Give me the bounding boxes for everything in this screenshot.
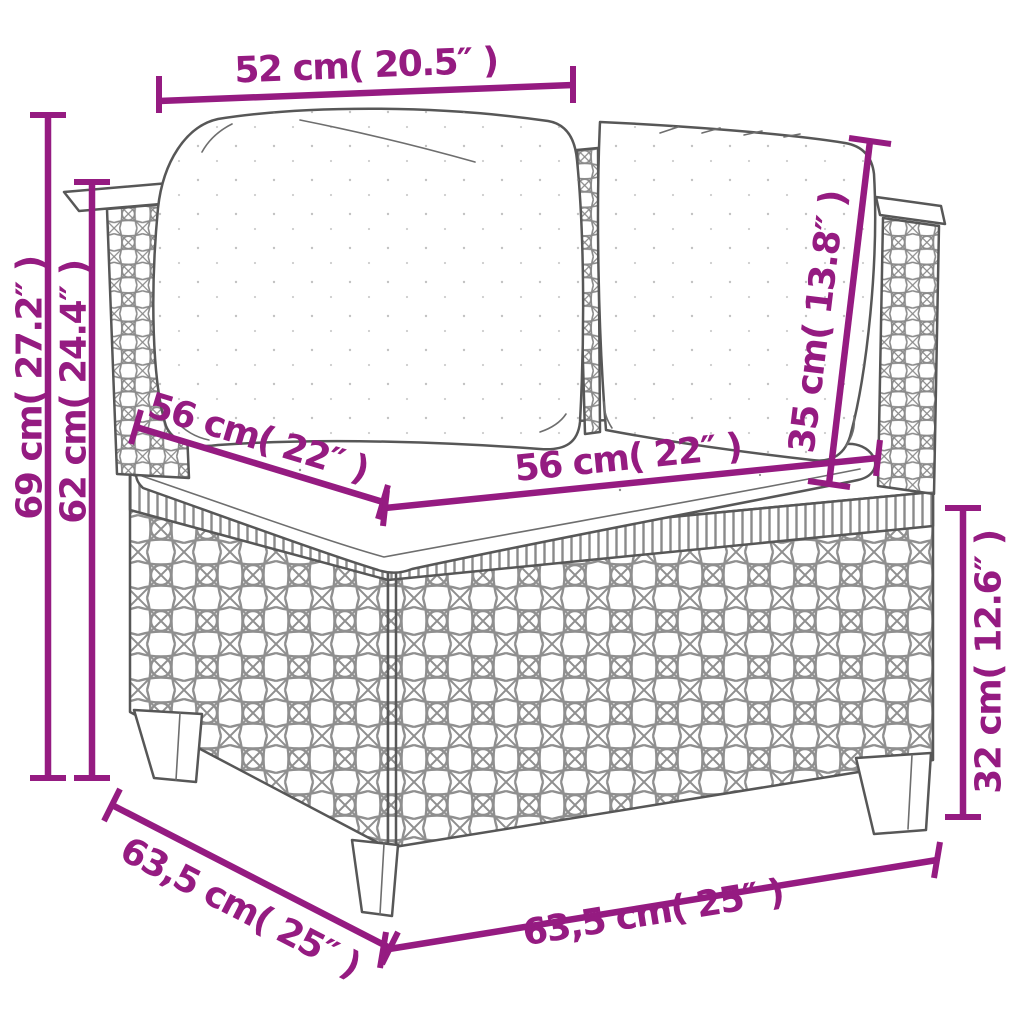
left-back-cushion-stipple [153,109,583,450]
dim-tick [876,440,880,476]
diagram-canvas: 52 cm( 20.5″ ) 69 cm( 27.2″ ) 62 cm( 24.… [0,0,1024,1024]
dim-backrest-height: 62 cm( 24.4″ ) [54,182,111,778]
leg-front [352,840,398,916]
leg-left [134,710,202,782]
left-back-cushion [153,109,583,450]
back-post [878,218,939,494]
leg-right [856,753,931,834]
dim-tick [383,490,387,526]
dim-label-overall-depth: 63,5 cm( 25″ ) [114,830,367,987]
sofa-dimension-diagram: 52 cm( 20.5″ ) 69 cm( 27.2″ ) 62 cm( 24.… [0,0,1024,1024]
dim-line [159,85,573,101]
right-back-panel [876,197,945,494]
dim-tick [934,842,940,878]
dim-label-overall-width: 63,5 cm( 25″ ) [520,872,787,955]
dim-tick [849,138,891,144]
dim-label-backrest-height: 62 cm( 24.4″ ) [54,260,95,523]
dim-label-back-width-top: 52 cm( 20.5″ ) [234,40,499,91]
dim-label-base-height: 32 cm( 12.6″ ) [969,530,1010,793]
dim-back-width-top: 52 cm( 20.5″ ) [159,40,573,113]
dim-label-overall-height: 69 cm( 27.2″ ) [10,256,51,519]
stipple-dot [759,474,761,476]
dim-overall-width: 63,5 cm( 25″ ) [380,842,940,968]
dim-base-height: 32 cm( 12.6″ ) [945,508,1010,817]
stipple-dot [619,489,621,491]
